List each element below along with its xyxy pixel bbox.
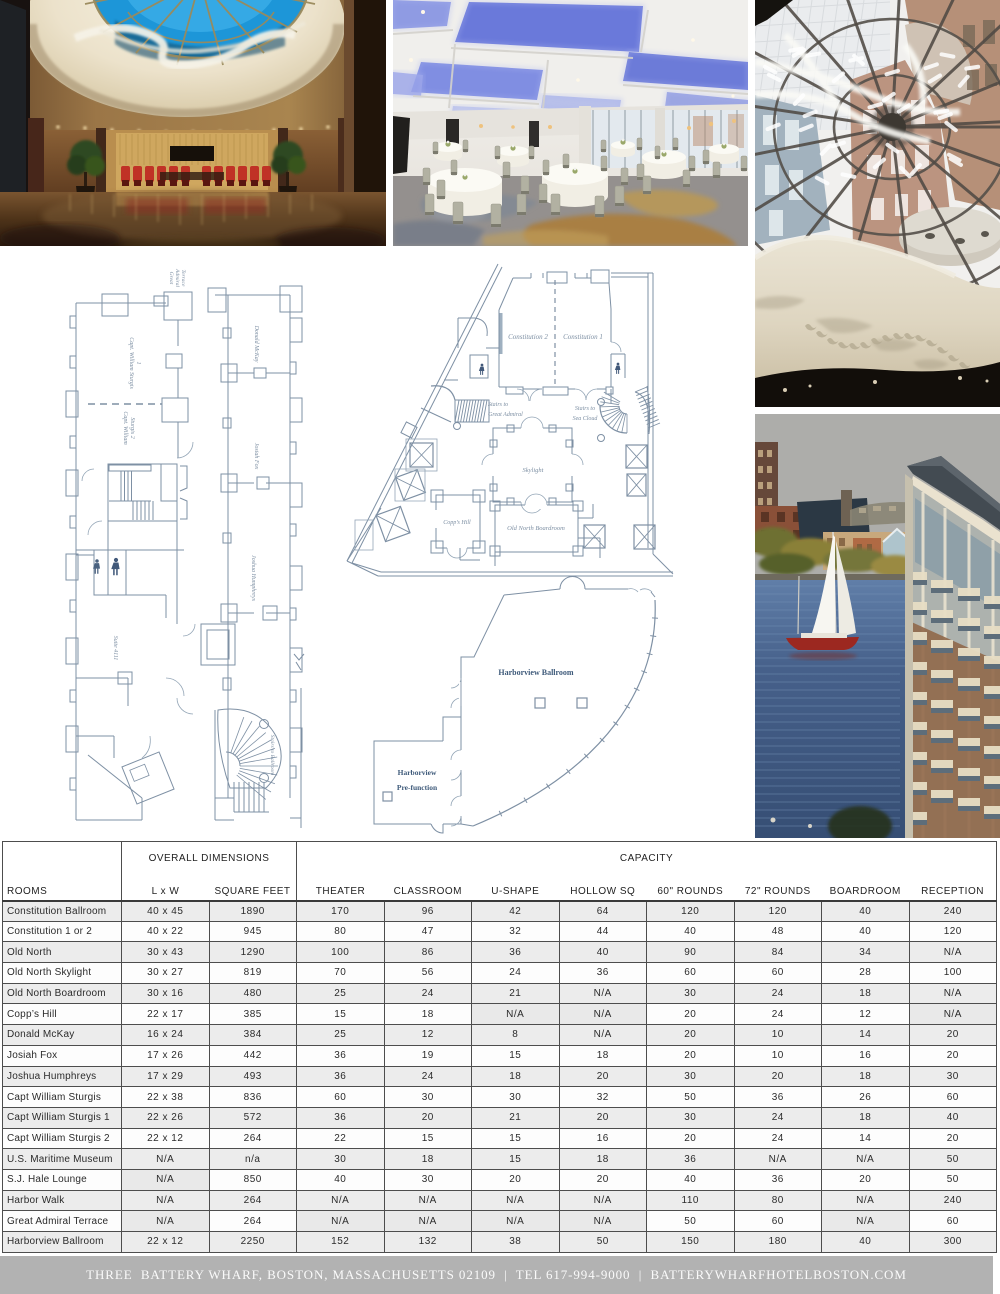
svg-text:Josiah Fox: Josiah Fox bbox=[253, 443, 259, 470]
svg-text:Harborview: Harborview bbox=[398, 768, 437, 777]
svg-text:Constitution 1: Constitution 1 bbox=[563, 333, 603, 341]
svg-text:Great Admiral: Great Admiral bbox=[488, 412, 523, 418]
svg-text:Capt. William: Capt. William bbox=[122, 411, 128, 445]
svg-text:Sea Cloud: Sea Cloud bbox=[573, 416, 599, 422]
svg-text:Suite 4111: Suite 4111 bbox=[112, 636, 119, 661]
svg-text:Capt. William Sturgis: Capt. William Sturgis bbox=[128, 337, 134, 389]
svg-text:Great: Great bbox=[168, 272, 174, 285]
svg-text:Stairs to: Stairs to bbox=[575, 406, 595, 412]
svg-text:Admiral: Admiral bbox=[174, 268, 180, 288]
svg-text:Stairs to: Stairs to bbox=[488, 402, 508, 408]
svg-text:Donald McKay: Donald McKay bbox=[253, 325, 259, 363]
svg-text:Old North Boardroom: Old North Boardroom bbox=[507, 525, 565, 532]
svg-text:Terrace: Terrace bbox=[180, 270, 186, 287]
svg-text:Harborview Ballroom: Harborview Ballroom bbox=[498, 668, 574, 677]
svg-text:Sturgis 2: Sturgis 2 bbox=[129, 417, 135, 438]
svg-text:Constitution 2: Constitution 2 bbox=[508, 333, 548, 341]
svg-text:Joshua Humphreys: Joshua Humphreys bbox=[250, 555, 256, 602]
svg-text:Copp’s Hill: Copp’s Hill bbox=[443, 520, 471, 526]
svg-text:1: 1 bbox=[135, 362, 141, 365]
svg-text:Pre-function: Pre-function bbox=[397, 783, 438, 792]
svg-text:Skylight: Skylight bbox=[523, 467, 544, 474]
